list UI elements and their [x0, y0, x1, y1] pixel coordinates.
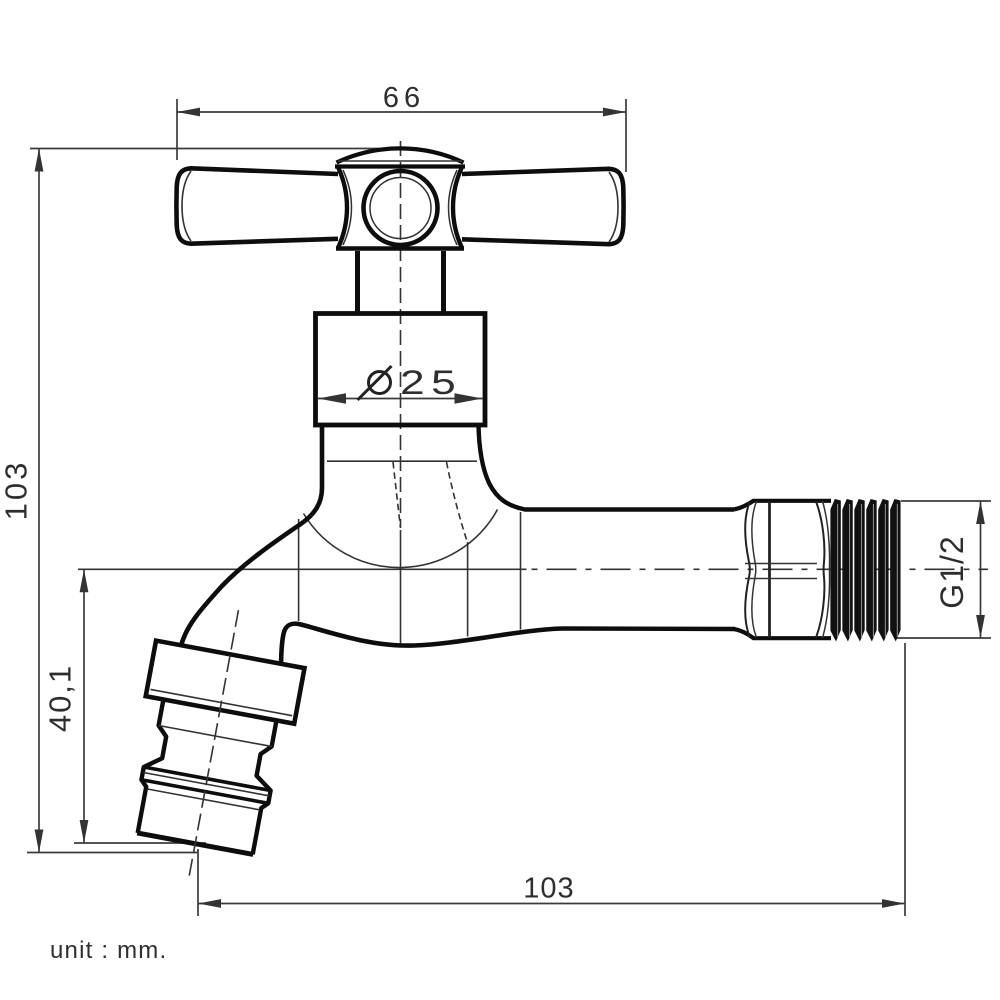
svg-text:unit : mm.: unit : mm.: [50, 937, 167, 964]
svg-text:103: 103: [0, 460, 34, 521]
svg-text:103: 103: [523, 873, 574, 905]
svg-text:40,1: 40,1: [43, 664, 78, 732]
svg-text:G1/2: G1/2: [934, 535, 970, 608]
svg-text:25: 25: [400, 364, 462, 402]
svg-text:66: 66: [383, 82, 425, 114]
